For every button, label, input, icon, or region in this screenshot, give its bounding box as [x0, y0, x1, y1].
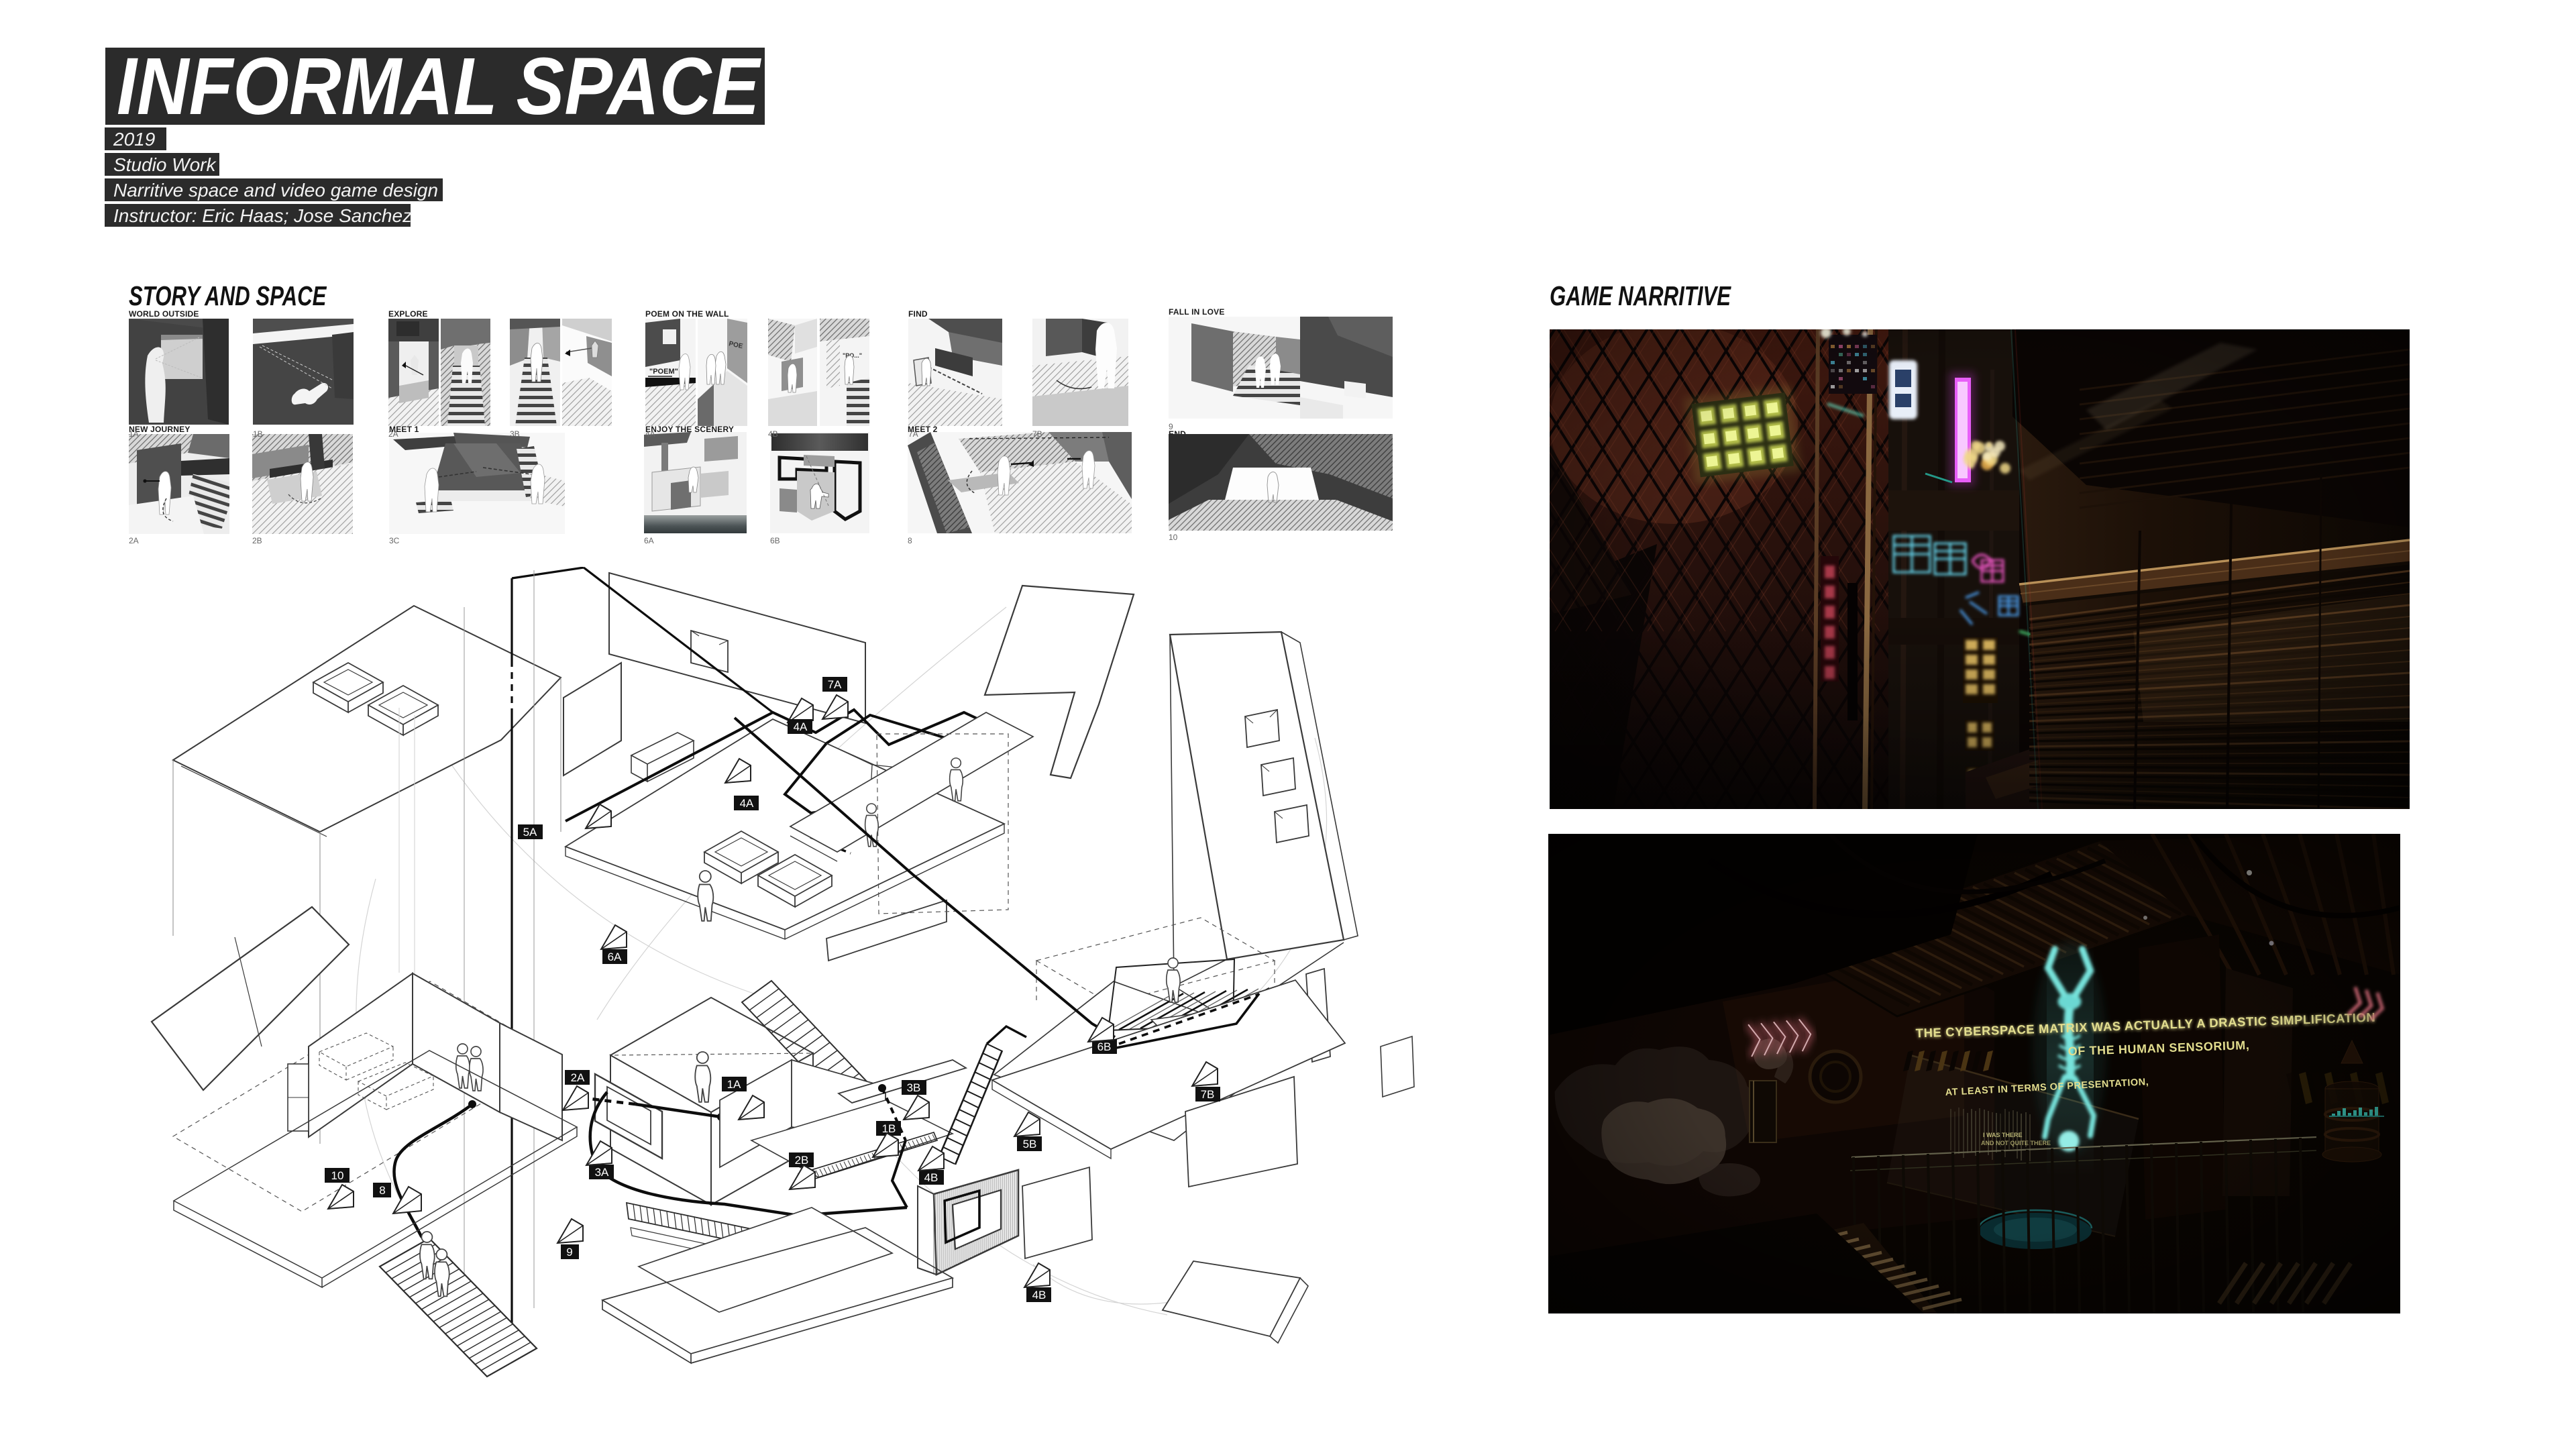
svg-text:5A: 5A [523, 826, 537, 839]
svg-text:7B: 7B [1201, 1088, 1215, 1101]
svg-text:2A: 2A [571, 1071, 585, 1084]
svg-text:4A: 4A [794, 720, 808, 733]
svg-text:9: 9 [566, 1246, 572, 1258]
svg-text:3A: 3A [595, 1166, 609, 1179]
svg-text:8: 8 [379, 1184, 385, 1197]
svg-text:3B: 3B [907, 1081, 921, 1094]
svg-text:4A: 4A [740, 797, 754, 810]
svg-text:4B: 4B [1032, 1289, 1046, 1301]
svg-text:"POEM": "POEM" [649, 368, 678, 376]
svg-text:7A: 7A [828, 678, 842, 691]
svg-text:2B: 2B [795, 1154, 809, 1167]
svg-text:5B: 5B [1023, 1138, 1037, 1150]
svg-text:6B: 6B [1097, 1040, 1112, 1053]
svg-text:10: 10 [331, 1169, 344, 1182]
svg-text:6A: 6A [608, 951, 622, 963]
svg-text:1B: 1B [882, 1122, 896, 1135]
svg-text:4B: 4B [924, 1171, 938, 1184]
svg-text:1A: 1A [727, 1078, 741, 1091]
